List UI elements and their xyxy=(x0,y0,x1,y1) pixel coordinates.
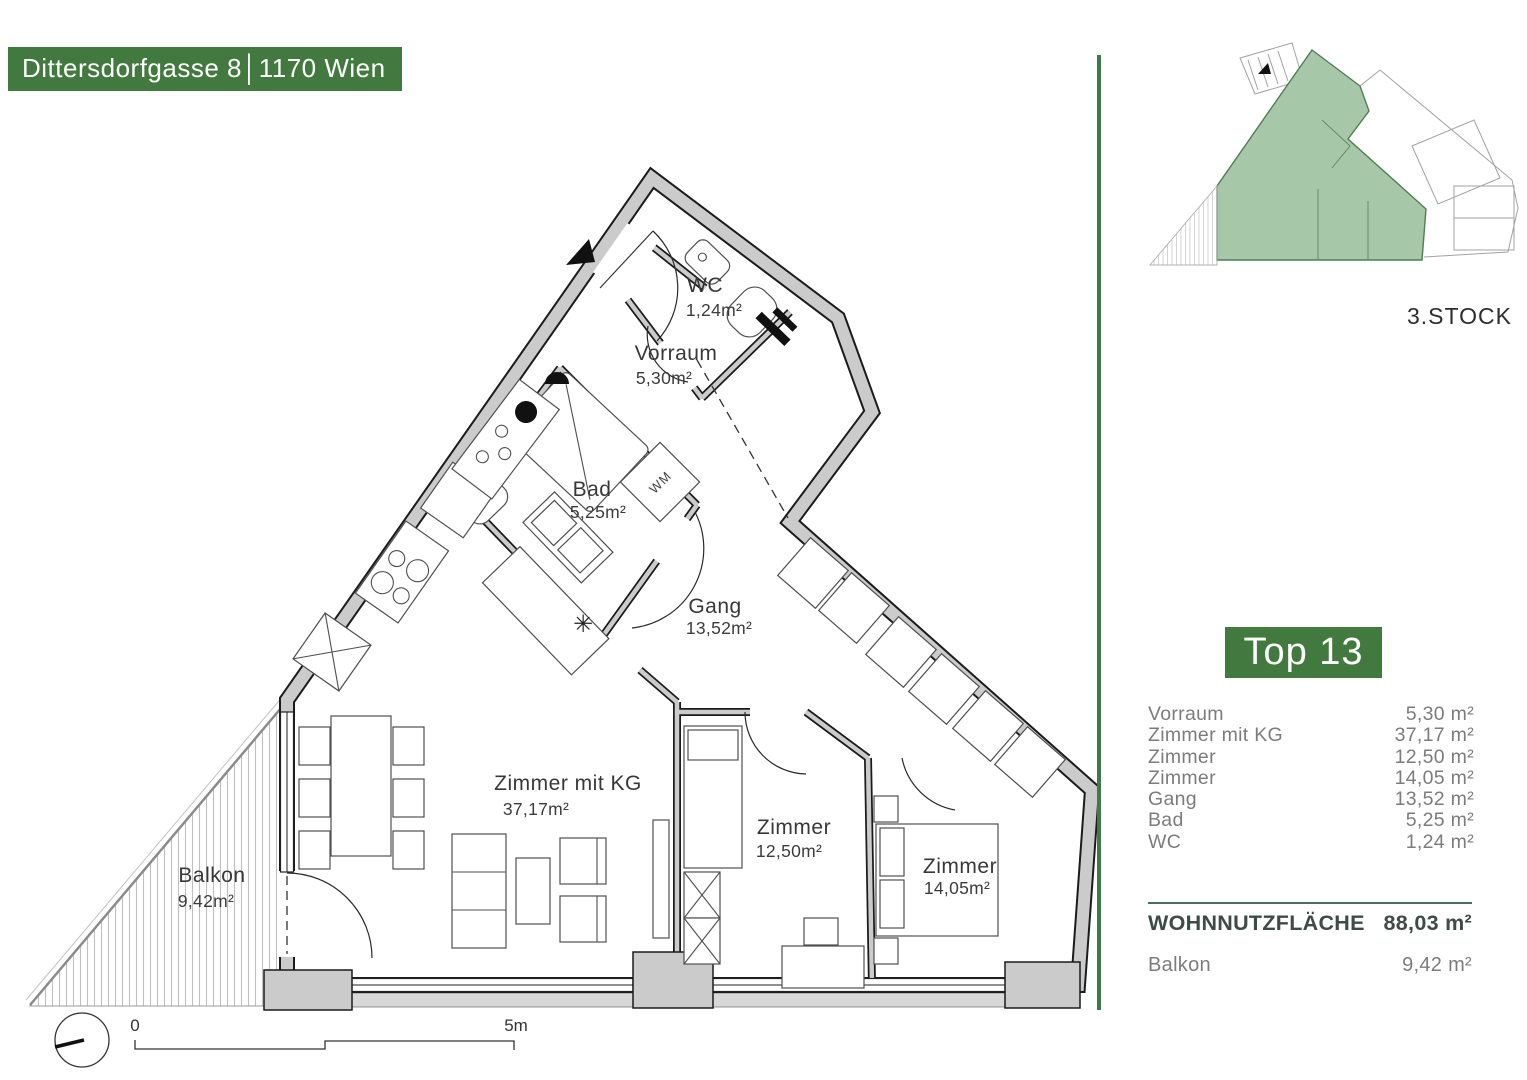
room-row: WC 1,24 m² xyxy=(1148,832,1474,853)
area-wc: 1,24m² xyxy=(686,300,742,320)
room-area: 5,30 m² xyxy=(1406,704,1474,725)
overview-plan xyxy=(1130,38,1522,298)
floor-label: 3.STOCK xyxy=(1292,303,1512,330)
balcony-row: Balkon 9,42 m² xyxy=(1148,954,1472,977)
overview-balcony xyxy=(1150,186,1217,265)
label-zimmer2: Zimmer xyxy=(757,816,831,839)
room-area: 14,05 m² xyxy=(1395,768,1474,789)
room-table: Vorraum 5,30 m² Zimmer mit KG 37,17 m² Z… xyxy=(1148,704,1474,853)
room-label: Zimmer xyxy=(1148,768,1216,789)
label-gang: Gang xyxy=(688,595,741,618)
north-indicator xyxy=(55,1013,109,1067)
unit-badge: Top 13 xyxy=(1225,627,1382,678)
room-label: Zimmer mit KG xyxy=(1148,725,1283,746)
label-vorraum: Vorraum xyxy=(635,342,718,365)
room-row: Zimmer 14,05 m² xyxy=(1148,768,1474,789)
label-bad: Bad xyxy=(573,478,612,501)
area-bad: 5,25m² xyxy=(570,502,626,522)
room-label: Zimmer xyxy=(1148,747,1216,768)
label-balkon: Balkon xyxy=(178,864,245,887)
living-room-furniture xyxy=(299,716,669,948)
area-zimmer2: 12,50m² xyxy=(756,841,822,861)
room-area: 13,52 m² xyxy=(1395,789,1474,810)
room-area: 37,17 m² xyxy=(1395,725,1474,746)
area-balkon: 9,42m² xyxy=(178,891,234,911)
address-badge: Dittersdorfgasse 8│1170 Wien xyxy=(8,47,402,91)
scale-end: 5m xyxy=(504,1016,528,1035)
room-row: Zimmer mit KG 37,17 m² xyxy=(1148,725,1474,746)
vertical-divider xyxy=(1097,55,1101,1010)
summary-value: 88,03 m² xyxy=(1384,911,1472,936)
room-row: Gang 13,52 m² xyxy=(1148,789,1474,810)
hall-wardrobes xyxy=(778,538,1066,798)
balcony-terrace xyxy=(26,696,287,1006)
room-row: Vorraum 5,30 m² xyxy=(1148,704,1474,725)
summary-divider xyxy=(1148,902,1472,904)
room-row: Zimmer 12,50 m² xyxy=(1148,747,1474,768)
balcony-value: 9,42 m² xyxy=(1402,954,1472,977)
room-label: Vorraum xyxy=(1148,704,1224,725)
area-gang: 13,52m² xyxy=(686,618,752,638)
scale-bar: 0 5m xyxy=(130,1016,528,1050)
room-label: Gang xyxy=(1148,789,1197,810)
area-zimmer3: 14,05m² xyxy=(924,878,990,898)
room-row: Bad 5,25 m² xyxy=(1148,810,1474,831)
floorplan-page: WM xyxy=(0,0,1527,1080)
room-area: 5,25 m² xyxy=(1406,810,1474,831)
dishwasher-icon: ✳ xyxy=(573,610,593,638)
label-zimmer-kg: Zimmer mit KG xyxy=(494,772,642,795)
label-wc: WC xyxy=(687,274,723,297)
balcony-label: Balkon xyxy=(1148,954,1211,977)
room-area: 12,50 m² xyxy=(1395,747,1474,768)
main-floorplan: WM xyxy=(0,0,1100,1080)
summary-label: WOHNNUTZFLÄCHE xyxy=(1148,911,1365,936)
room-label: Bad xyxy=(1148,810,1184,831)
room-area: 1,24 m² xyxy=(1406,832,1474,853)
scale-start: 0 xyxy=(130,1016,139,1035)
summary-row: WOHNNUTZFLÄCHE 88,03 m² xyxy=(1148,911,1472,936)
room-label: WC xyxy=(1148,832,1181,853)
entrance-arrow-icon xyxy=(566,239,595,265)
area-vorraum: 5,30m² xyxy=(636,368,692,388)
overview-unit-highlight xyxy=(1217,50,1426,260)
label-zimmer3: Zimmer xyxy=(923,855,997,878)
area-zimmer-kg: 37,17m² xyxy=(503,799,569,819)
